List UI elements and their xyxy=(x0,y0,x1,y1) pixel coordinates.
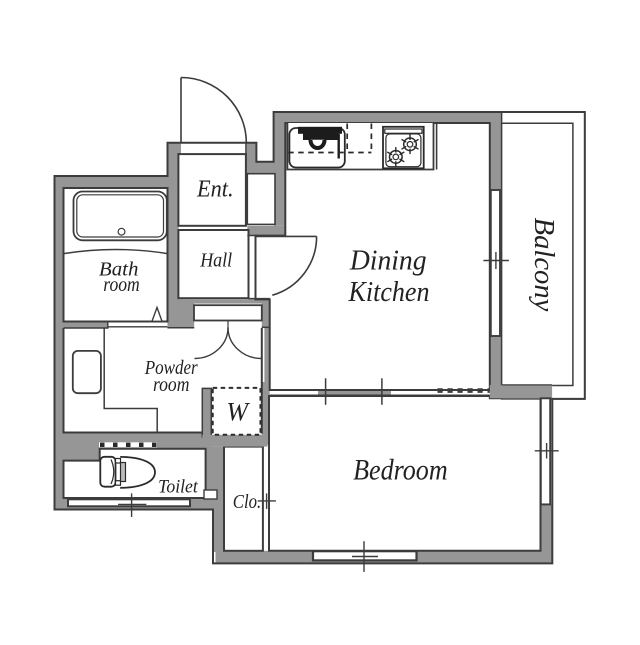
svg-text:Dining: Dining xyxy=(349,246,427,277)
svg-text:Hall: Hall xyxy=(199,250,232,272)
svg-text:Ent.: Ent. xyxy=(196,177,233,203)
svg-text:room: room xyxy=(103,275,140,296)
svg-text:Clo.: Clo. xyxy=(233,492,261,513)
svg-text:W: W xyxy=(226,398,250,427)
svg-text:Toilet: Toilet xyxy=(158,477,198,498)
svg-text:Balcony: Balcony xyxy=(528,218,559,312)
svg-text:Kitchen: Kitchen xyxy=(348,277,430,308)
svg-text:Bedroom: Bedroom xyxy=(353,454,448,487)
svg-text:room: room xyxy=(153,374,190,396)
